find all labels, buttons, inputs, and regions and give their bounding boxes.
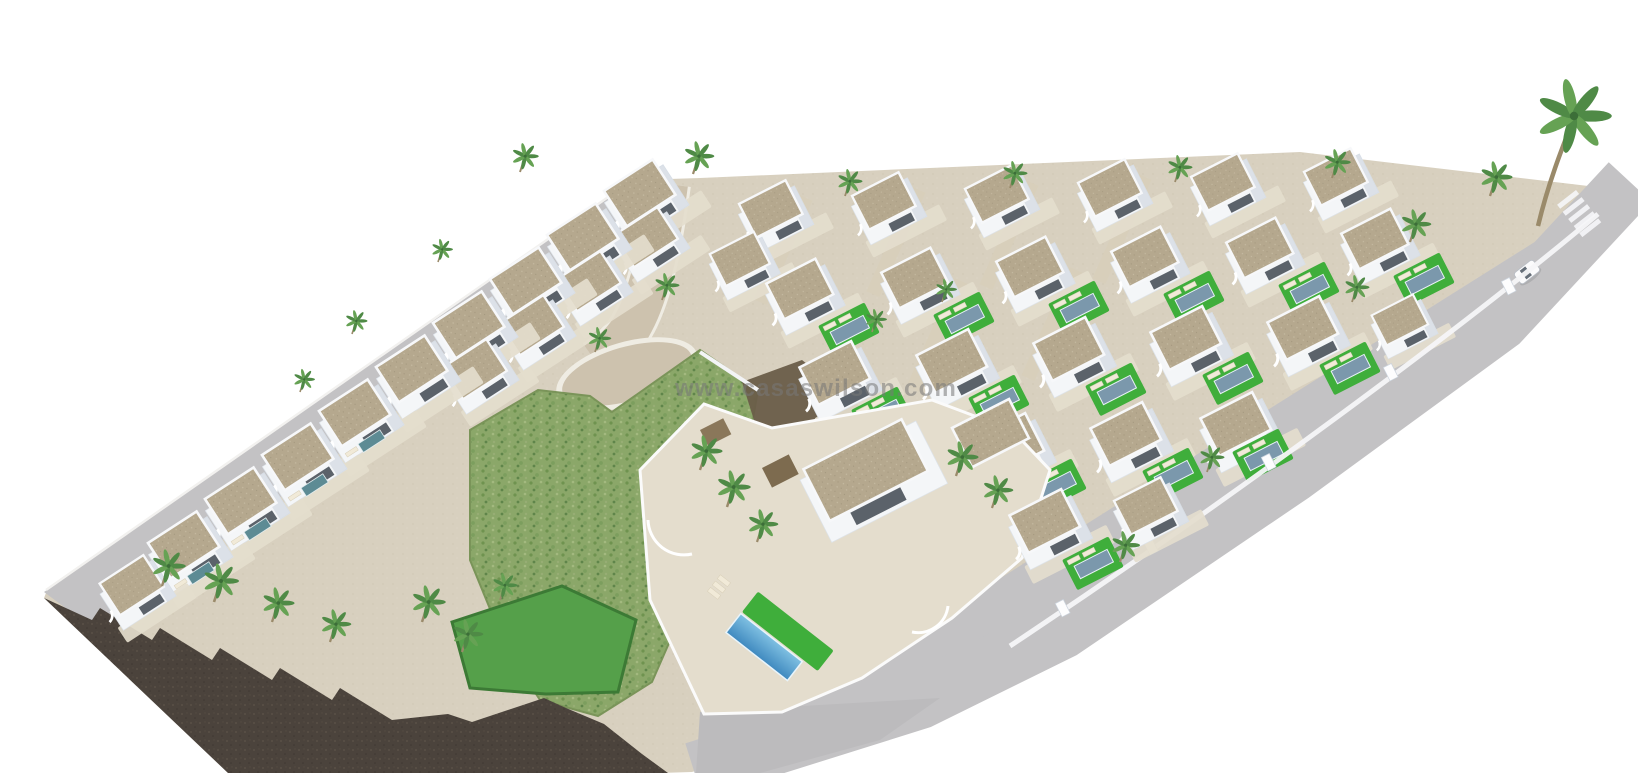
palm-tree	[432, 239, 453, 262]
palm-tree	[684, 141, 714, 174]
aerial-villa-development-render: www.casaswilson.com	[0, 0, 1638, 773]
palm-tree	[346, 310, 368, 334]
palm-tree	[512, 143, 539, 172]
watermark: www.casaswilson.com	[674, 375, 957, 402]
site-plan-canvas: www.casaswilson.com	[0, 0, 1638, 773]
palm-tree	[294, 369, 315, 392]
